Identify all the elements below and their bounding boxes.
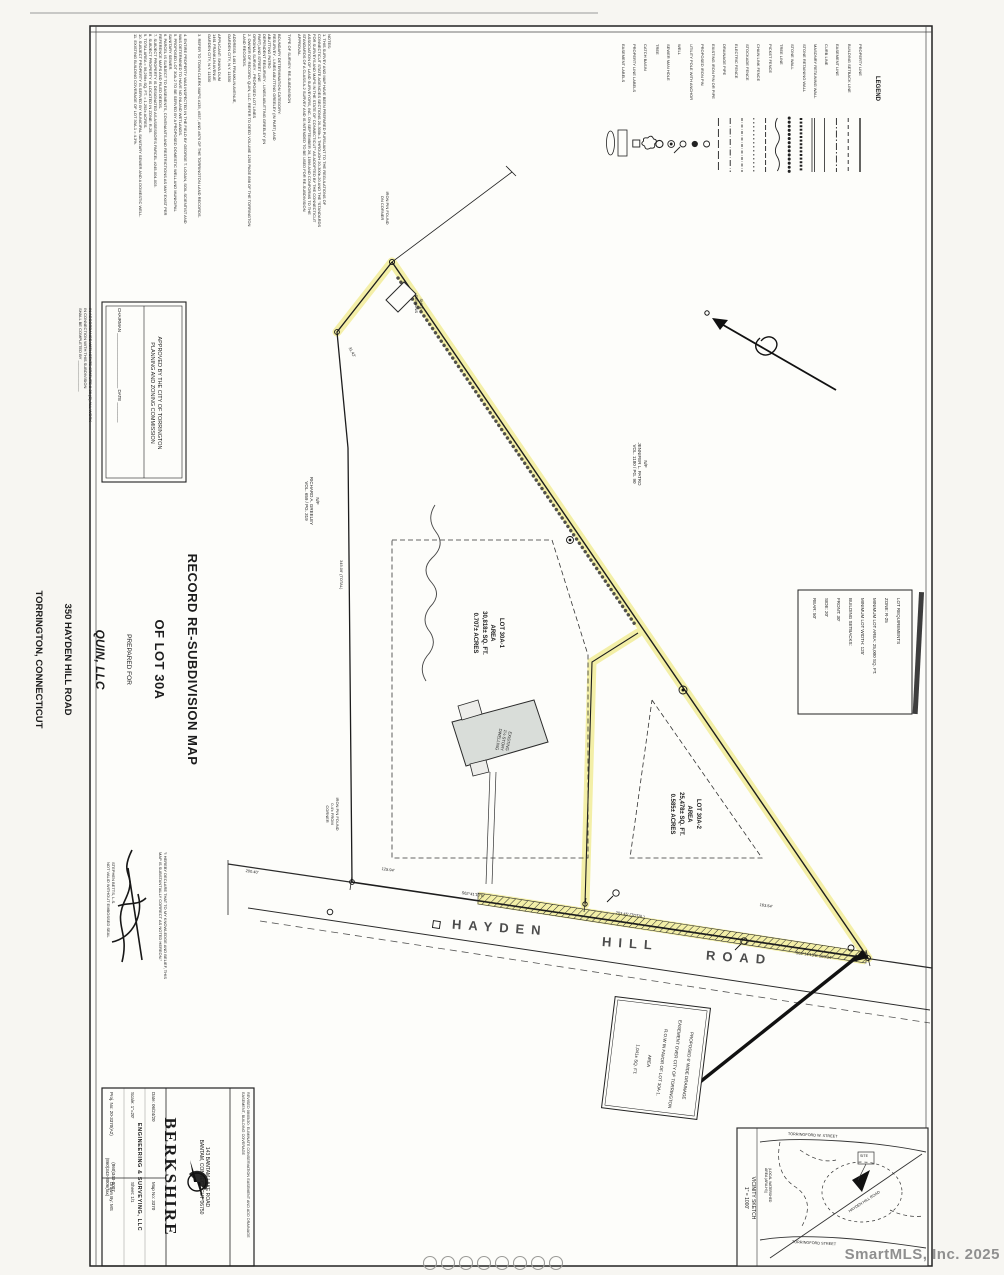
notes-column-3: 4. ENTIRE PROPERTY WAS INSPECTED IN THE … bbox=[133, 34, 188, 334]
vicinity-site-label: SITE bbox=[860, 1154, 868, 1158]
approval-title: APPROVED BY THE CITY OF TORRINGTON PLANN… bbox=[148, 308, 162, 478]
iron-pin-road-label: IRON PIN FOUND 0.4'± FROM CORNER bbox=[325, 786, 340, 842]
title-address: 350 HAYDEN HILL ROAD bbox=[62, 552, 73, 767]
notes-column-2: 2. OWNER OF RECORD: QUIN, LLC. REFER TO … bbox=[197, 34, 252, 334]
iron-pin-top-label: IRON PIN FOUND ON CORNER bbox=[380, 178, 390, 238]
title-prepared-for: PREPARED FOR bbox=[125, 552, 132, 767]
title-line1: RECORD RE-SUBDIVISION MAP bbox=[185, 552, 200, 767]
abutter-greeley: N/F RICHARD A. GREELEY VOL. 659 / PG. 31… bbox=[304, 466, 321, 536]
titleblock-col1: Date: 06/24/20 Scale: 1"=20' Proj. No: 2… bbox=[101, 1092, 164, 1176]
legend-title: LEGEND bbox=[874, 76, 880, 101]
titleblock-revision: REVISED 08/05/20: ELIMINATE CONSERVATION… bbox=[241, 1092, 250, 1264]
firm-address: 143 BANTAM LAKE ROAD BANTAM, CONNECTICUT… bbox=[198, 1090, 210, 1264]
surveyor-declaration: "I HEREBY DECLARE THAT TO MY KNOWLEDGE A… bbox=[158, 852, 168, 982]
lot-30a-1-label: LOT 30A-1 AREA 30,818± SQ. FT. 0.707± AC… bbox=[471, 590, 505, 676]
title-owner: QUIN, LLC bbox=[93, 552, 107, 767]
map-title: RECORD RE-SUBDIVISION MAP OF LOT 30A PRE… bbox=[15, 552, 218, 767]
lot-30a-2-label: LOT 30A-2 AREA 25,478± SQ. FT. 0.585± AC… bbox=[668, 766, 702, 862]
approval-sign-line: CHAIRMAN ______________________ DATE ___… bbox=[117, 308, 122, 478]
scanned-survey-map-page: RECORD RE-SUBDIVISION MAP OF LOT 30A PRE… bbox=[0, 0, 1004, 1275]
title-city: TORRINGTON, CONNECTICUT bbox=[33, 552, 44, 767]
titleblock-col2: Map No: 3370 Sheet: 1/1 Drawn By: MS bbox=[101, 1182, 164, 1264]
distance-345-total: 345.06' (TOTAL) bbox=[339, 560, 344, 589]
surveyor-name-seal: STEPHEN BETTS, L.S. NOT VALID WITHOUT EM… bbox=[106, 862, 116, 982]
smartmls-watermark: SmartMLS, Inc. 2025 bbox=[830, 1246, 1000, 1263]
approval-text: APPROVED BY THE CITY OF TORRINGTON PLANN… bbox=[60, 308, 180, 478]
title-line2: OF LOT 30A bbox=[152, 552, 167, 767]
vicinity-watershed-label: (LOCAL WATERSHED AREA (ARA-HI)) bbox=[764, 1168, 772, 1202]
abutter-patro: N/F JENNIFER L. PATRO VOL. 1180 / PG. 90 bbox=[632, 428, 649, 500]
shed-label: SHED REMAINS bbox=[414, 288, 424, 320]
lot-requirements: LOT REQUIREMENTS ZONE: R-25 MINIMUM LOT … bbox=[808, 598, 904, 708]
notes-column-1: NOTES: 1. THIS SURVEY AND MAP HAVE BEEN … bbox=[252, 34, 332, 334]
legend-items: PROPERTY LINE BUILDING SETBACK LINE EASE… bbox=[617, 44, 866, 118]
vicinity-title: VICINITY SKETCH 1" = 1000' bbox=[742, 1158, 756, 1238]
approval-note: IN ACCORDANCE WITH STATE STATUTE 8-26 (C… bbox=[78, 308, 93, 478]
